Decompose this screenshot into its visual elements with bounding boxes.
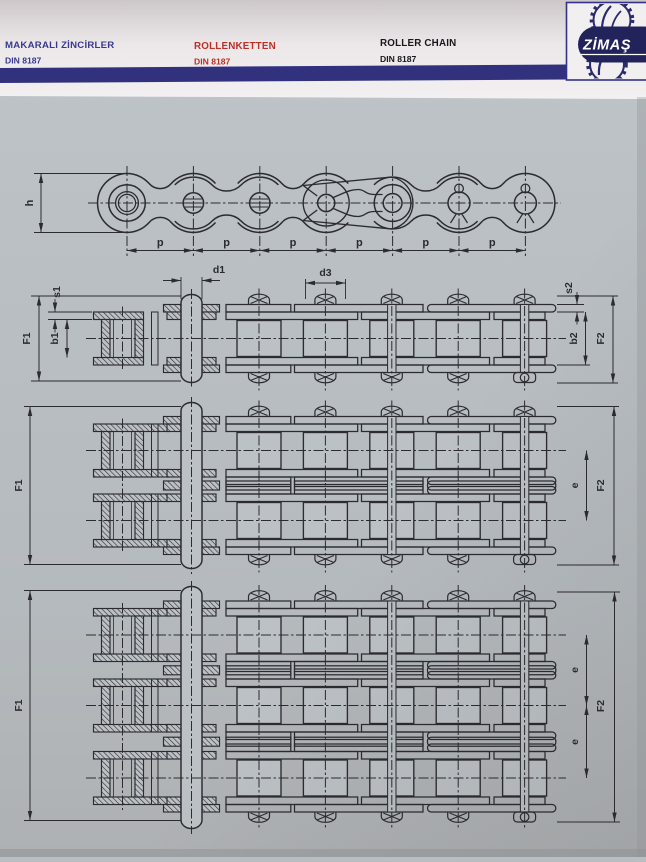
svg-text:p: p — [157, 237, 164, 249]
svg-text:e: e — [569, 482, 581, 488]
svg-text:ROLLENKETTEN: ROLLENKETTEN — [194, 41, 276, 52]
svg-text:p: p — [223, 237, 230, 249]
svg-text:F2: F2 — [595, 332, 607, 344]
svg-text:F1: F1 — [21, 332, 33, 344]
svg-text:DIN 8187: DIN 8187 — [5, 56, 42, 66]
svg-text:DIN 8187: DIN 8187 — [380, 54, 417, 64]
svg-text:F1: F1 — [13, 699, 25, 711]
svg-text:p: p — [356, 237, 363, 249]
svg-text:d3: d3 — [319, 267, 331, 279]
svg-text:F2: F2 — [595, 700, 607, 712]
svg-text:F2: F2 — [595, 479, 607, 491]
svg-text:F1: F1 — [13, 479, 25, 491]
svg-text:p: p — [290, 237, 297, 249]
svg-text:s1: s1 — [51, 286, 63, 298]
svg-text:DIN 8187: DIN 8187 — [194, 57, 231, 67]
svg-text:MAKARALI ZİNCİRLER: MAKARALI ZİNCİRLER — [5, 40, 115, 51]
svg-text:b2: b2 — [568, 332, 580, 344]
svg-text:ROLLER CHAIN: ROLLER CHAIN — [380, 38, 456, 49]
svg-text:p: p — [422, 237, 429, 249]
svg-text:h: h — [24, 199, 36, 206]
svg-text:b1: b1 — [49, 332, 61, 344]
svg-text:d1: d1 — [213, 264, 225, 276]
svg-text:e: e — [569, 667, 581, 673]
svg-text:s2: s2 — [563, 282, 575, 294]
svg-text:ZİMAŞ: ZİMAŞ — [582, 37, 631, 54]
svg-text:p: p — [489, 237, 496, 249]
svg-text:e: e — [569, 739, 581, 745]
